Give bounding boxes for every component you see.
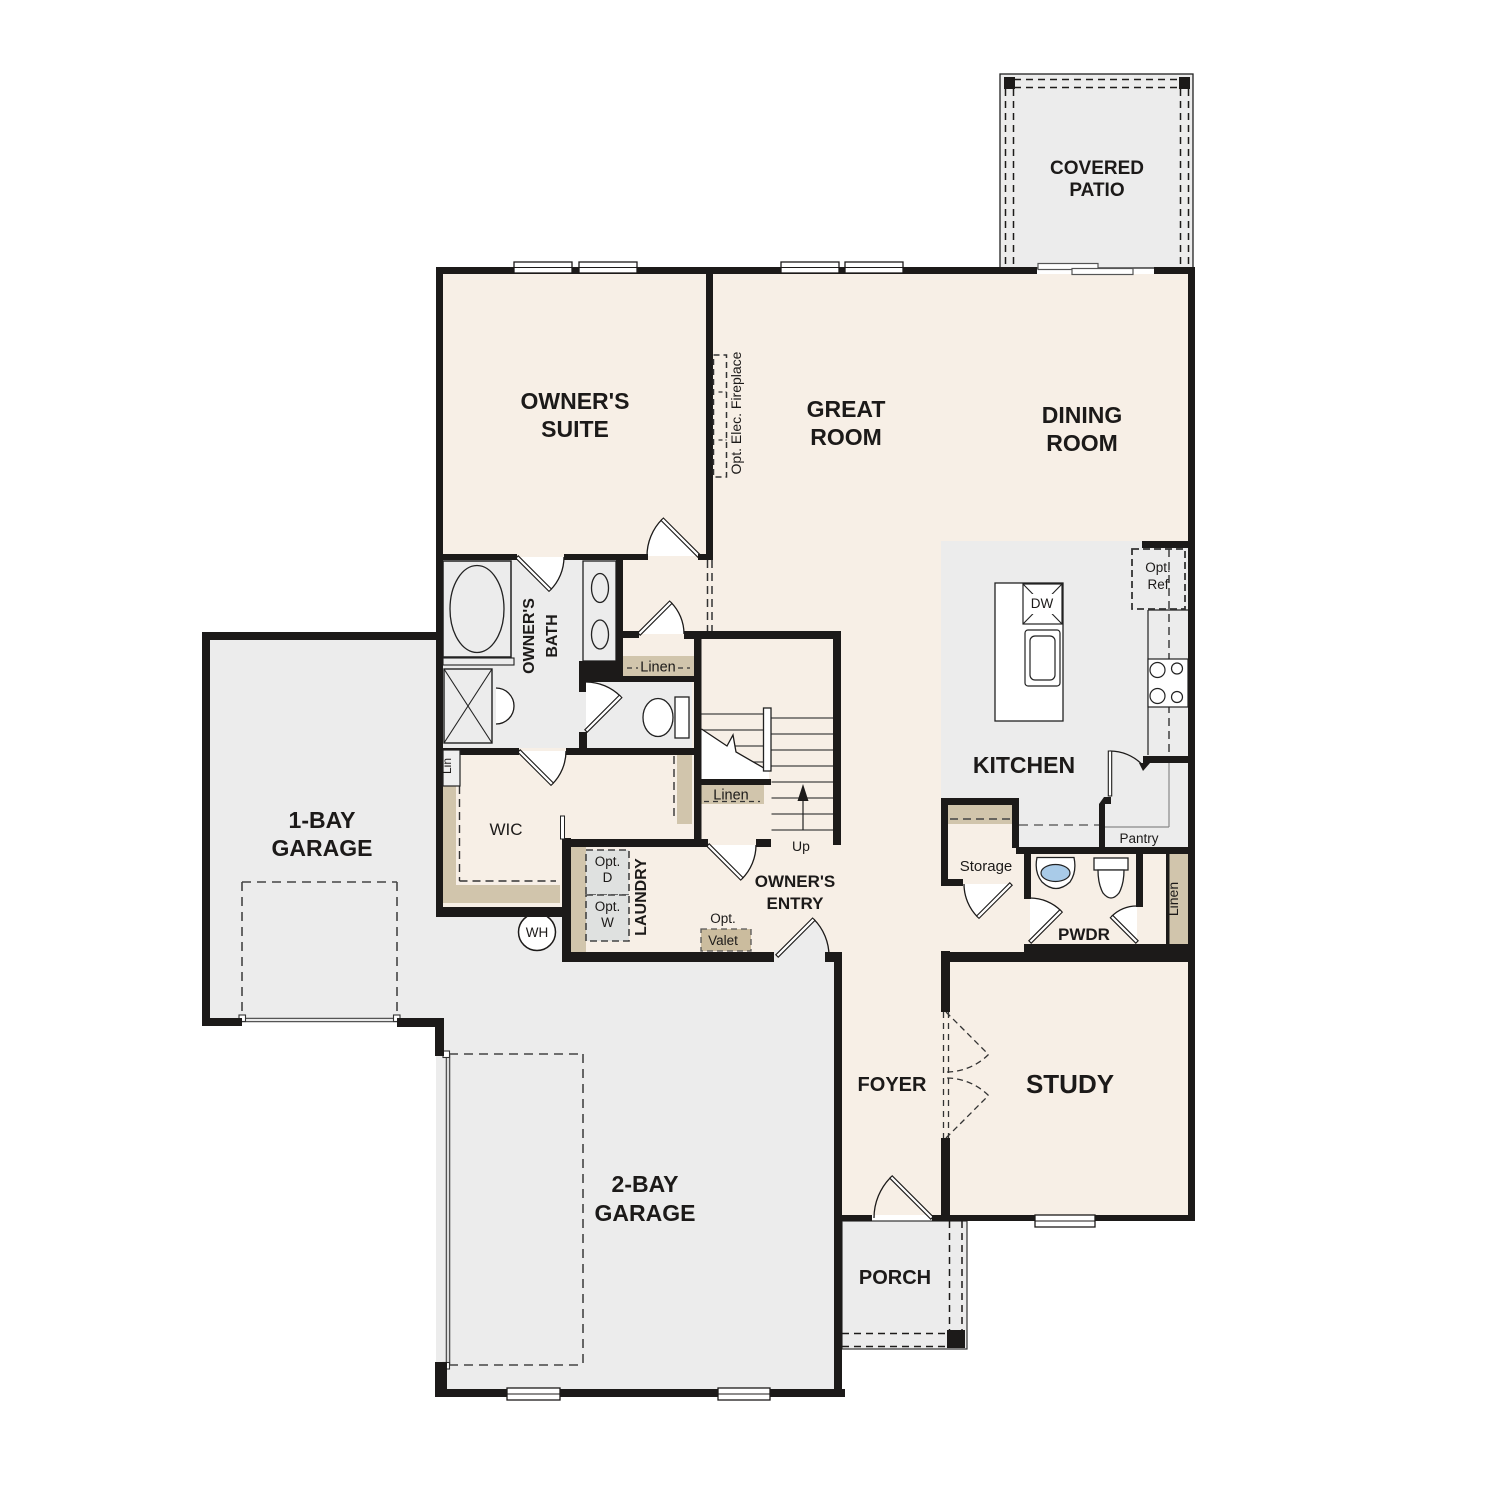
svg-text:COVERED: COVERED bbox=[1050, 158, 1144, 179]
svg-text:WIC: WIC bbox=[489, 820, 522, 839]
svg-text:OWNER'S: OWNER'S bbox=[521, 598, 538, 674]
svg-text:ROOM: ROOM bbox=[1046, 430, 1118, 456]
svg-text:Valet: Valet bbox=[708, 933, 738, 948]
svg-text:Ref: Ref bbox=[1147, 577, 1168, 592]
svg-text:DINING: DINING bbox=[1042, 402, 1123, 428]
svg-text:GREAT: GREAT bbox=[807, 396, 886, 422]
svg-text:OWNER'S: OWNER'S bbox=[521, 388, 630, 414]
svg-text:SUITE: SUITE bbox=[541, 416, 609, 442]
svg-text:PORCH: PORCH bbox=[859, 1267, 931, 1289]
svg-text:1-BAY: 1-BAY bbox=[289, 807, 356, 833]
svg-text:PATIO: PATIO bbox=[1069, 180, 1124, 201]
svg-text:KITCHEN: KITCHEN bbox=[973, 752, 1075, 778]
svg-text:PWDR: PWDR bbox=[1058, 925, 1110, 944]
svg-text:DW: DW bbox=[1031, 596, 1054, 611]
svg-text:ENTRY: ENTRY bbox=[767, 894, 825, 913]
svg-text:WH: WH bbox=[526, 925, 549, 940]
svg-text:Up: Up bbox=[792, 838, 810, 854]
svg-text:Opt.: Opt. bbox=[1145, 560, 1171, 575]
svg-text:ROOM: ROOM bbox=[810, 424, 882, 450]
svg-text:W: W bbox=[601, 915, 614, 930]
svg-text:LAUNDRY: LAUNDRY bbox=[633, 858, 650, 936]
svg-text:D: D bbox=[603, 870, 613, 885]
svg-text:FOYER: FOYER bbox=[858, 1074, 927, 1096]
svg-text:Linen: Linen bbox=[1165, 882, 1181, 916]
svg-text:Lin: Lin bbox=[440, 758, 454, 774]
svg-text:Opt.: Opt. bbox=[710, 911, 736, 926]
svg-text:OWNER'S: OWNER'S bbox=[755, 872, 836, 891]
svg-text:BATH: BATH bbox=[544, 614, 561, 657]
svg-text:GARAGE: GARAGE bbox=[272, 835, 373, 861]
svg-text:2-BAY: 2-BAY bbox=[612, 1171, 679, 1197]
svg-text:GARAGE: GARAGE bbox=[595, 1200, 696, 1226]
svg-text:Opt.: Opt. bbox=[595, 899, 621, 914]
svg-text:Opt.: Opt. bbox=[595, 854, 621, 869]
svg-text:Storage: Storage bbox=[960, 858, 1013, 875]
svg-text:STUDY: STUDY bbox=[1026, 1069, 1114, 1099]
svg-text:Linen: Linen bbox=[640, 660, 675, 676]
svg-text:Pantry: Pantry bbox=[1119, 831, 1158, 846]
svg-text:Opt. Elec. Fireplace: Opt. Elec. Fireplace bbox=[728, 351, 744, 474]
